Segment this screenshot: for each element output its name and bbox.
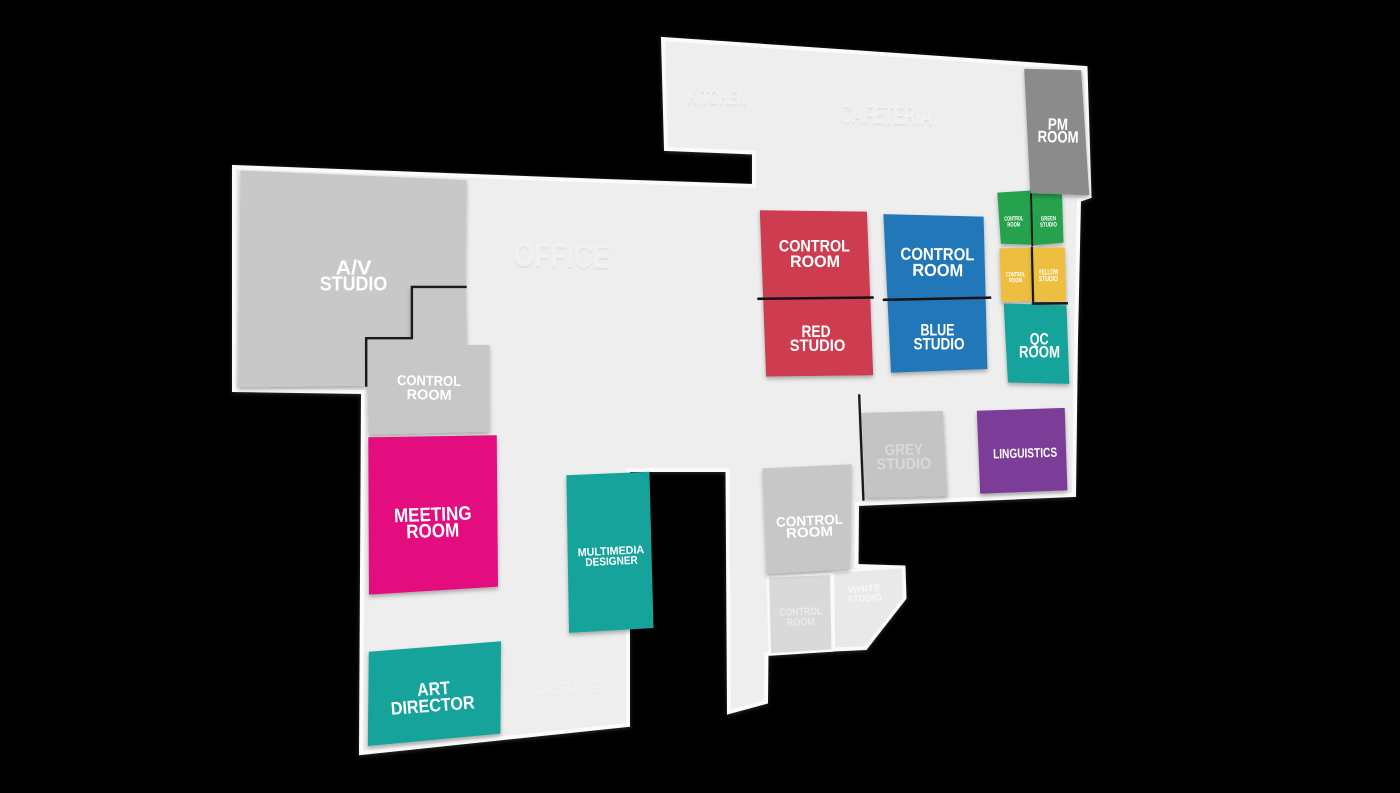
svg-text:STUDIO: STUDIO (876, 455, 931, 473)
svg-text:ROOM: ROOM (786, 524, 834, 541)
svg-text:OFFICE: OFFICE (514, 236, 611, 276)
svg-text:ROOM: ROOM (406, 387, 451, 404)
svg-text:DESIGNER: DESIGNER (585, 555, 638, 569)
svg-text:ROOM: ROOM (912, 260, 963, 280)
svg-text:ROOM: ROOM (1009, 277, 1022, 284)
svg-text:STUDIO: STUDIO (1040, 221, 1057, 228)
svg-text:ROOM: ROOM (406, 519, 460, 543)
svg-text:STUDIO: STUDIO (914, 336, 965, 354)
svg-text:ROOM: ROOM (1037, 128, 1078, 147)
svg-text:KITCHEN: KITCHEN (687, 85, 746, 109)
svg-text:ROOM: ROOM (1019, 342, 1060, 361)
svg-text:STUDIO: STUDIO (320, 274, 388, 296)
svg-text:ROOM: ROOM (790, 253, 840, 271)
svg-text:CASTING: CASTING (530, 678, 601, 699)
svg-text:STUDIO: STUDIO (790, 337, 846, 355)
svg-text:LINGUISTICS: LINGUISTICS (993, 445, 1057, 462)
svg-text:ROOM: ROOM (787, 616, 816, 629)
svg-text:STUDIO: STUDIO (847, 592, 883, 605)
svg-text:CAFETERIA: CAFETERIA (840, 98, 933, 130)
svg-text:ROOM: ROOM (1007, 221, 1020, 228)
svg-text:STUDIO: STUDIO (1039, 274, 1058, 283)
